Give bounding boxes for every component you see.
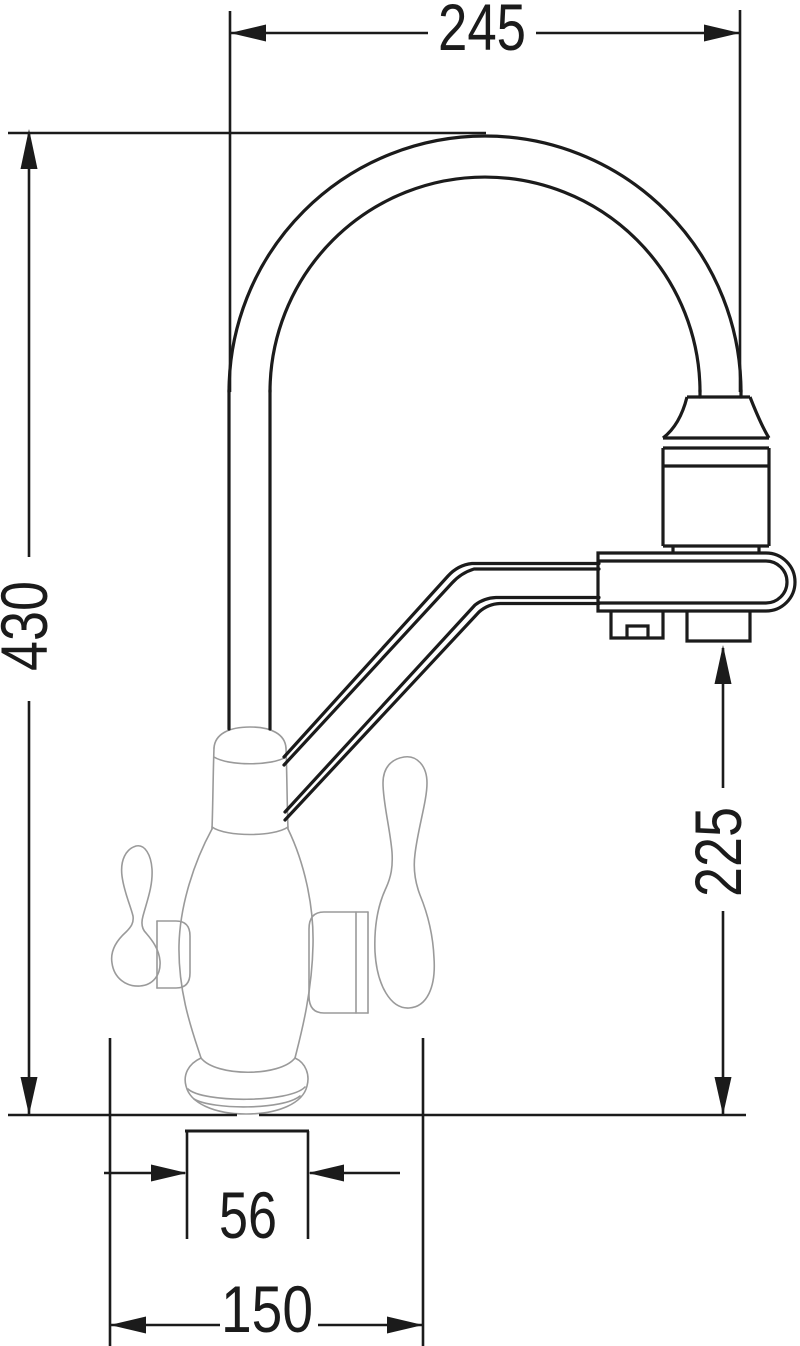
dimension-overall-width-245: 245 — [230, 0, 740, 392]
right-handle-lever — [375, 757, 434, 1008]
dim-150-arrow-right — [387, 1317, 423, 1334]
dim-56-arrow-left — [151, 1165, 187, 1182]
dim-225-arrow-bottom — [715, 1077, 732, 1115]
faucet-fixture-outline — [229, 136, 795, 820]
faucet-body-outline — [112, 727, 435, 1114]
dim-430-label: 430 — [0, 581, 61, 671]
base-flange-top-rim — [201, 1058, 295, 1072]
left-handle-lever — [112, 846, 160, 986]
dim-245-arrow-left — [230, 25, 266, 42]
outlet-arm-inner — [598, 561, 787, 603]
drawing-page: 245 430 225 56 150 — [0, 0, 800, 1346]
collar-trapezoid — [663, 397, 769, 438]
dimension-overall-height-430: 430 — [0, 129, 486, 1115]
dim-430-arrow-bottom — [21, 1077, 38, 1115]
body-left-edge — [179, 829, 212, 1058]
dim-150-arrow-left — [110, 1317, 146, 1334]
dimension-outlet-height-225: 225 — [681, 645, 755, 1115]
dim-150-label: 150 — [221, 1272, 313, 1346]
left-handle-hub — [157, 921, 190, 988]
dim-430-arrow-top — [21, 129, 38, 169]
dim-56-arrow-right — [308, 1165, 344, 1182]
dim-245-arrow-right — [704, 25, 740, 42]
neck-ring-lower — [212, 827, 288, 835]
right-handle-hub — [309, 912, 368, 1013]
dim-245-label: 245 — [438, 0, 526, 64]
gooseneck-outer-arc — [229, 136, 741, 392]
arm-fitting-right — [687, 611, 750, 641]
dim-225-arrow-top — [715, 645, 732, 684]
neck-dome — [214, 727, 286, 748]
gooseneck-inner-arc — [270, 177, 700, 392]
base-flange-bottom-rim-2 — [194, 1096, 300, 1107]
cartridge-body — [663, 448, 769, 553]
neck-left-edge — [212, 748, 214, 829]
faucet-dimension-drawing: 245 430 225 56 150 — [0, 0, 800, 1346]
base-flange-bottom-rim — [188, 1087, 305, 1099]
dim-56-label: 56 — [219, 1178, 277, 1252]
dim-225-label: 225 — [681, 807, 755, 897]
dimension-base-neck-56: 56 — [104, 1131, 400, 1252]
neck-ring-upper — [214, 757, 286, 764]
arm-fitting-left-notch — [627, 626, 648, 638]
base-flange-outer — [185, 1058, 308, 1114]
